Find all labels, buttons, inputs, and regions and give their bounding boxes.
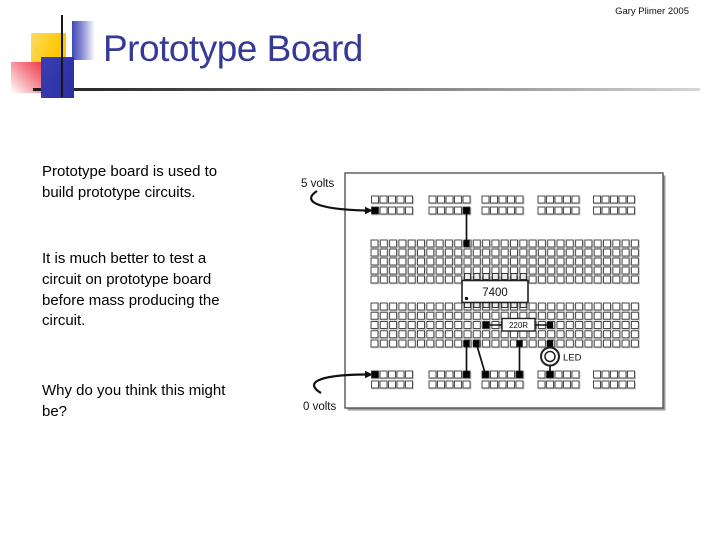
resistor-label: 220R bbox=[509, 321, 528, 330]
paragraph-3: Why do you think this might be? bbox=[42, 381, 248, 422]
slide-body: Prototype board is used to build prototy… bbox=[42, 162, 248, 469]
slide-title: Prototype Board bbox=[103, 28, 363, 70]
led-inner-circle bbox=[545, 352, 555, 362]
zero-volts-label: 0 volts bbox=[303, 401, 336, 413]
title-rule bbox=[33, 88, 700, 91]
slide: Gary Plimer 2005 Prototype Board Prototy… bbox=[0, 0, 720, 540]
prototype-board-diagram: 7400 220R LED 5 volts 0 volts bbox=[290, 160, 680, 420]
decor-blue-gradient-square bbox=[72, 21, 95, 60]
led-label: LED bbox=[563, 353, 582, 364]
chip-pin1-dot bbox=[465, 297, 468, 300]
chip-label: 7400 bbox=[482, 287, 508, 299]
decor-vertical-line bbox=[61, 15, 63, 97]
five-volts-label: 5 volts bbox=[301, 178, 334, 190]
author-credit: Gary Plimer 2005 bbox=[615, 6, 689, 17]
decor-solid-blue-square bbox=[41, 57, 74, 98]
paragraph-1: Prototype board is used to build prototy… bbox=[42, 162, 248, 203]
paragraph-2: It is much better to test a circuit on p… bbox=[42, 249, 248, 332]
